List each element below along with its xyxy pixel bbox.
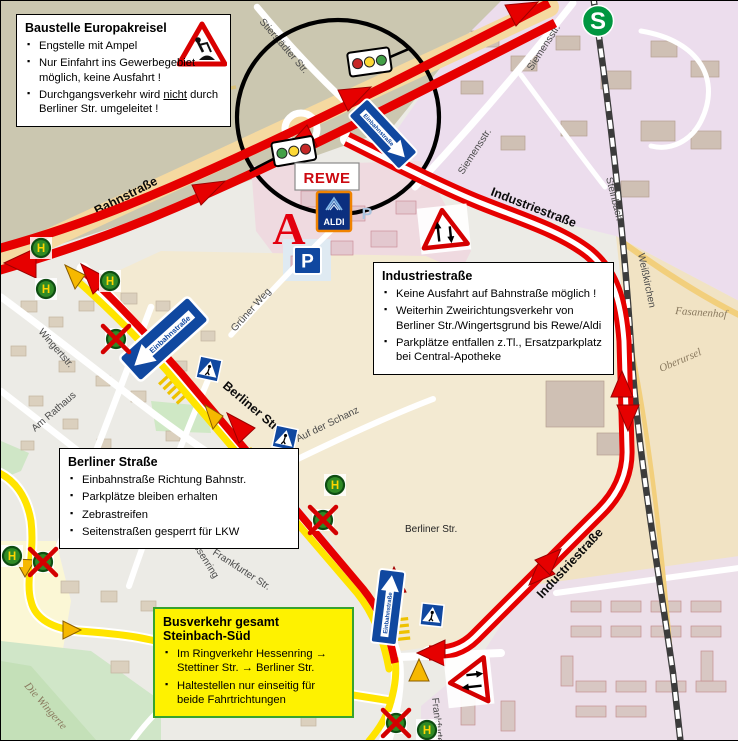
- bullet: Parkplätze entfallen z.Tl., Ersatzparkpl…: [382, 336, 605, 365]
- bullet: Im Ringverkehr Hessenring → Stettiner St…: [163, 647, 344, 676]
- bus-stop-icon: H: [1, 545, 23, 567]
- info-box-title: Industriestraße: [382, 269, 605, 283]
- bus-stop-icon: H: [416, 719, 438, 740]
- bus-stop-icon: H: [99, 270, 121, 292]
- info-box-busverkehr: Busverkehr gesamt Steinbach-Süd Im Ringv…: [153, 607, 354, 718]
- info-box-title: Busverkehr gesamt Steinbach-Süd: [163, 615, 344, 643]
- parking-map-letter: P: [362, 206, 373, 223]
- svg-text:H: H: [106, 276, 114, 288]
- bullet: Seitenstraßen gesperrt für LKW: [68, 525, 290, 539]
- info-box-industriestrasse: Industriestraße Keine Ausfahrt auf Bahns…: [373, 262, 614, 375]
- svg-text:S: S: [590, 8, 606, 35]
- zebra-crossing-sign: [420, 603, 444, 627]
- bullet: Engstelle mit Ampel: [25, 39, 168, 53]
- bus-stop-closed-icon: H: [383, 710, 409, 736]
- bus-stop-icon: H: [30, 237, 52, 259]
- info-box-title: Baustelle Europakreisel: [25, 21, 168, 35]
- zebra-crossing-sign: [196, 356, 222, 382]
- bullet: Haltestellen nur einseitig für beide Fah…: [163, 679, 344, 708]
- street-label: Berliner Str.: [405, 524, 457, 535]
- bus-stop-closed-icon: H: [30, 549, 56, 575]
- rewe-logo: REWE: [295, 163, 359, 190]
- info-box-berliner-strasse: Berliner Straße Einbahnstraße Richtung B…: [59, 448, 299, 549]
- aldi-logo: ALDI: [317, 192, 351, 231]
- svg-text:H: H: [42, 284, 50, 296]
- bus-stop-closed-icon: H: [103, 326, 129, 352]
- parking-sign: P: [294, 247, 321, 274]
- bullet: Keine Ausfahrt auf Bahnstraße möglich !: [382, 287, 605, 301]
- svg-text:H: H: [8, 551, 16, 563]
- svg-text:REWE: REWE: [304, 170, 351, 187]
- bullet: Durchgangsverkehr wird nicht durch Berli…: [25, 88, 222, 117]
- info-box-baustelle: Baustelle Europakreisel Engstelle mit Am…: [16, 14, 231, 127]
- bullet: Zebrastreifen: [68, 508, 290, 522]
- bullet: Nur Einfahrt ins Gewerbegebiet möglich, …: [25, 56, 222, 85]
- bullet: Parkplätze bleiben erhalten: [68, 490, 290, 504]
- construction-info-map: Bahnstraße Industriestraße Industriestra…: [0, 0, 738, 741]
- two-way-traffic-sign: [444, 654, 495, 709]
- bullet: Einbahnstraße Richtung Bahnstr.: [68, 473, 290, 487]
- svg-text:H: H: [37, 243, 45, 255]
- info-box-title: Berliner Straße: [68, 455, 290, 469]
- bus-stop-icon: H: [35, 278, 57, 300]
- bus-stop-closed-icon: H: [310, 507, 336, 533]
- svg-text:H: H: [331, 480, 339, 492]
- bus-stop-icon: H: [324, 474, 346, 496]
- svg-text:P: P: [301, 252, 314, 273]
- svg-text:ALDI: ALDI: [324, 217, 345, 227]
- two-way-traffic-sign: [417, 204, 472, 255]
- bullet: Weiterhin Zweirichtungsverkehr von Berli…: [382, 304, 605, 333]
- sbahn-logo: S: [583, 6, 614, 37]
- svg-text:H: H: [423, 725, 431, 737]
